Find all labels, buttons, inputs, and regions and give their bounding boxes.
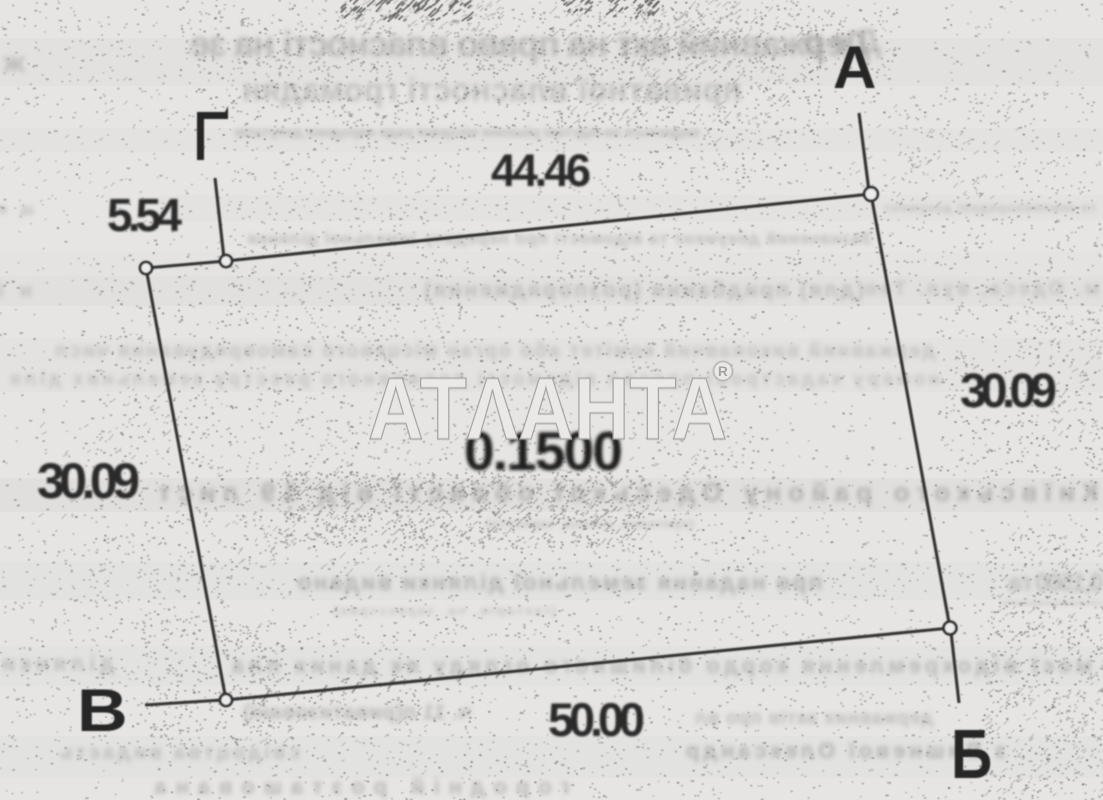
svg-text:44.46: 44.46 xyxy=(491,145,591,196)
svg-text:50.00: 50.00 xyxy=(548,693,645,746)
svg-text:В: В xyxy=(77,677,128,744)
svg-text:30.09: 30.09 xyxy=(960,365,1057,418)
svg-text:приватної власності громадян: приватної власності громадян xyxy=(242,72,742,108)
svg-text:видається на підставі рішення: видається на підставі рішення місцевої р… xyxy=(235,124,700,141)
svg-text:державних актів про вл: державних актів про вл xyxy=(695,708,933,729)
svg-text:5.54: 5.54 xyxy=(107,189,182,241)
svg-text:м. Одеса, вул. Тав: м. Одеса, вул. Тав xyxy=(865,278,1100,300)
svg-text:АТΛАНТА: АТΛАНТА xyxy=(368,359,727,458)
svg-text:R: R xyxy=(718,364,728,379)
svg-text:та землевпорядної документ: та землевпорядної документ xyxy=(884,200,1096,215)
svg-text:30.09: 30.09 xyxy=(37,453,140,509)
svg-text:(гектарів, чи. зареєстрик): (гектарів, чи. зареєстрик) xyxy=(334,603,556,618)
svg-text:А: А xyxy=(833,34,876,101)
svg-text:Державний акт на право власнос: Державний акт на право власності на зе xyxy=(190,23,870,64)
svg-text:ж: ж xyxy=(3,46,26,79)
svg-text:Зазначений документ та відомос: Зазначений документ та відомості про пер… xyxy=(248,229,873,248)
svg-text:Б: Б xyxy=(951,715,992,794)
svg-text:про надання земельної ділянки: про надання земельної ділянки видано xyxy=(298,569,823,595)
